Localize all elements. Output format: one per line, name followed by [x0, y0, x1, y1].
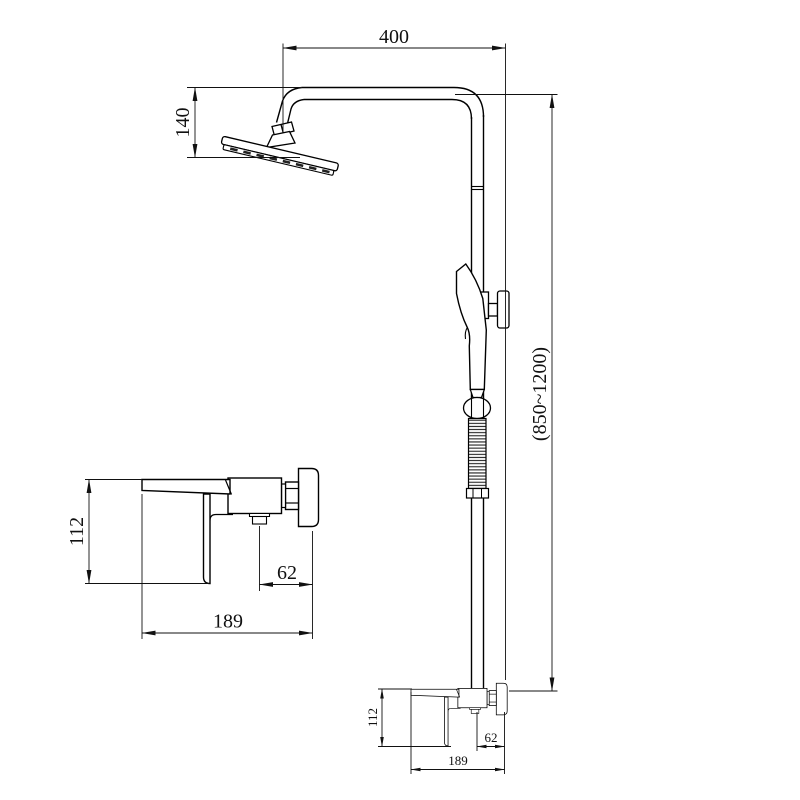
ball-joint-nut	[267, 122, 296, 148]
dim-label-mixer-height-detail: 112	[66, 517, 88, 546]
dim-label-mixer-outlet-main: 62	[485, 730, 498, 745]
hose-swivel-nut	[464, 398, 491, 419]
hand-shower-handle	[457, 264, 487, 390]
dim-mixer-height-main: 112	[365, 689, 451, 747]
dim-label-mixer-outlet-detail: 62	[277, 562, 297, 584]
dim-mixer-height-detail: 112	[66, 480, 209, 584]
dim-label-mixer-width-detail: 189	[213, 611, 243, 633]
shower-arm	[277, 88, 484, 124]
dim-mixer-outlet-detail: 62	[260, 526, 313, 639]
hand-shower	[457, 264, 491, 419]
main-view	[220, 88, 509, 746]
dim-label-mixer-height-main: 112	[365, 708, 380, 727]
shower-hose	[467, 419, 489, 499]
dim-label-head-drop: 140	[172, 108, 194, 138]
dim-label-mixer-width-main: 189	[448, 753, 468, 768]
holder-knob	[498, 291, 510, 328]
holder-stem	[489, 304, 498, 317]
handle-end-cone	[470, 390, 484, 398]
dim-mixer-outlet-main: 62	[477, 712, 505, 751]
dim-label-riser-height: (850~1200)	[529, 347, 551, 441]
technical-drawing-page: 400 140 (850~1200) 112 62	[0, 0, 800, 800]
head-mount-cone	[267, 132, 296, 148]
dim-riser-height: (850~1200)	[455, 95, 558, 692]
hose-nut	[467, 489, 489, 499]
shower-set-technical-drawing: 400 140 (850~1200) 112 62	[0, 0, 800, 800]
dim-label-arm-reach: 400	[379, 26, 409, 48]
